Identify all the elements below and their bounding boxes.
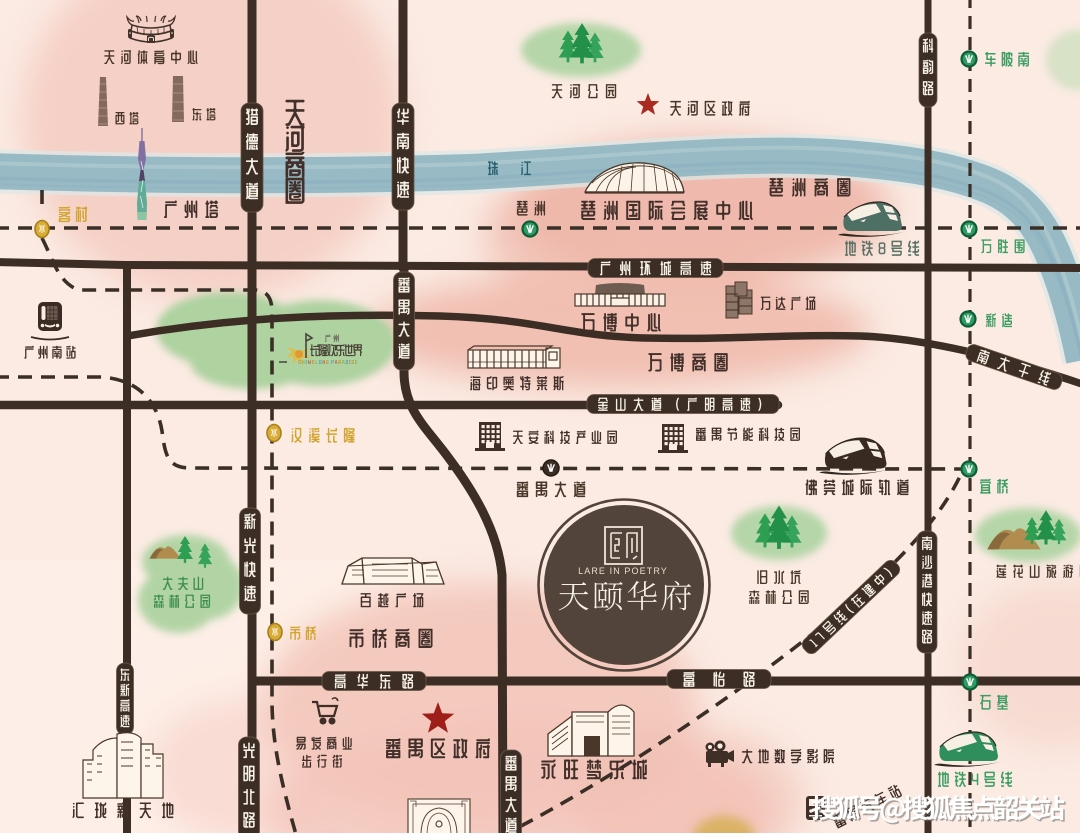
svg-text:LARE IN POETRY: LARE IN POETRY bbox=[578, 566, 668, 576]
